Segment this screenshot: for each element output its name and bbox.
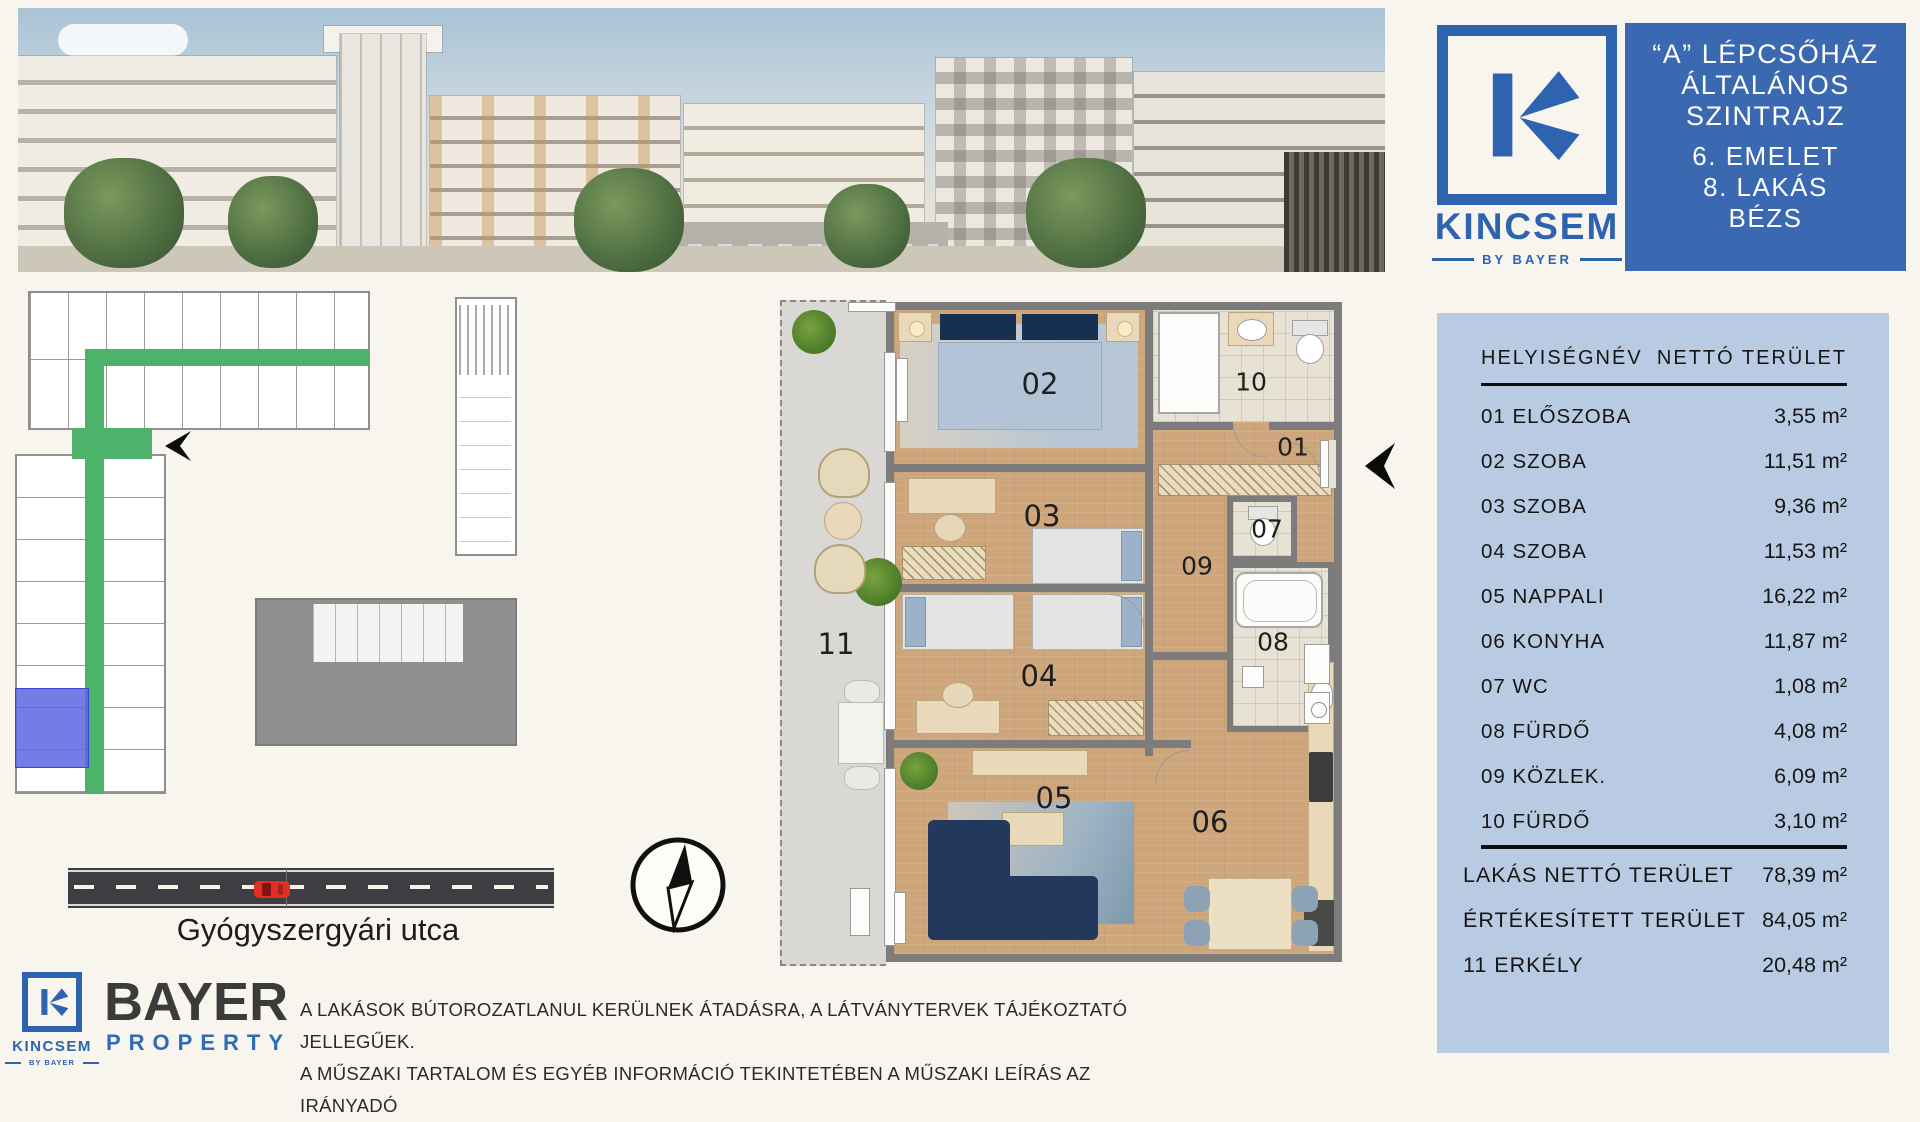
by-bayer-tagline-small: BY BAYER (2, 1058, 102, 1067)
kincsem-logo-small (22, 972, 82, 1032)
pillow (1121, 531, 1142, 581)
lamp (1117, 321, 1133, 337)
tree (64, 158, 184, 268)
shower (1158, 312, 1220, 414)
lounge-chair (814, 544, 866, 594)
header-rule (1481, 383, 1847, 386)
table-header: HELYISÉGNÉV NETTÓ TERÜLET (1437, 347, 1889, 370)
stair-hatch (459, 305, 511, 375)
table-row: 07 WC 1,08 m² (1437, 664, 1889, 709)
window (884, 598, 896, 730)
room-name: 05 NAPPALI (1481, 585, 1605, 609)
desk (908, 478, 996, 514)
tree (824, 184, 910, 268)
wall (1269, 422, 1334, 430)
room-name: 10 FÜRDŐ (1481, 810, 1590, 834)
room-label-01: 01 (1277, 433, 1309, 462)
pillow (940, 314, 1016, 340)
single-bed (1032, 528, 1144, 584)
disclaimer: A LAKÁSOK BÚTOROZATLANUL KERÜLNEK ÁTADÁS… (300, 994, 1130, 1122)
unit-lines (459, 392, 511, 542)
info-panel: “A” LÉPCSŐHÁZÁLTALÁNOSSZINTRAJZ 6. EMELE… (1625, 23, 1906, 271)
k-letter-icon (33, 983, 71, 1021)
wardrobe (1048, 700, 1144, 736)
table-summary: LAKÁS NETTÓ TERÜLET 78,39 m² ÉRTÉKESÍTET… (1437, 853, 1889, 988)
summary-area: 20,48 m² (1762, 953, 1847, 978)
duvet (938, 342, 1102, 430)
doormat (848, 302, 896, 312)
bathtub (1235, 572, 1323, 628)
room-label-11: 11 (818, 627, 855, 661)
summary-name: LAKÁS NETTÓ TERÜLET (1463, 863, 1734, 888)
panel-title-line: SZINTRAJZ (1625, 101, 1906, 132)
panel-title-line: “A” LÉPCSŐHÁZ (1625, 39, 1906, 70)
room-name: 08 FÜRDŐ (1481, 720, 1590, 744)
room-area: 4,08 m² (1774, 719, 1847, 744)
road-edge (68, 904, 554, 906)
room-label-09: 09 (1181, 552, 1213, 581)
basin (1237, 319, 1267, 341)
apartment-floor-plan: 01 02 03 04 05 06 07 08 09 10 11 (780, 300, 1380, 966)
summary-area: 84,05 m² (1762, 908, 1847, 933)
plant (792, 310, 836, 354)
sideboard (972, 750, 1088, 776)
room-label-06: 06 (1192, 805, 1229, 839)
panel-info-line: 8. LAKÁS (1625, 172, 1906, 203)
street-name-label: Gyógyszergyári utca (118, 912, 518, 948)
road-edge (68, 870, 554, 872)
room-name: 07 WC (1481, 675, 1549, 699)
room-name: 06 KONYHA (1481, 630, 1605, 654)
summary-row: 11 ERKÉLY 20,48 m² (1437, 943, 1889, 988)
entrance-arrow-icon (1365, 443, 1395, 489)
plant (900, 752, 938, 790)
coffee-table (1002, 812, 1064, 846)
summary-area: 78,39 m² (1762, 863, 1847, 888)
room-label-04: 04 (1021, 659, 1058, 693)
room-area: 16,22 m² (1762, 584, 1847, 609)
tagline-rule (5, 1062, 21, 1064)
wall (894, 464, 1153, 472)
room-area: 11,53 m² (1764, 539, 1847, 564)
dining-chair (1292, 920, 1318, 946)
washer-door (1311, 702, 1327, 718)
table-row: 05 NAPPALI 16,22 m² (1437, 574, 1889, 619)
panel-info-line: 6. EMELET (1625, 141, 1906, 172)
cloud (58, 24, 188, 56)
unit-arrow-icon (163, 429, 191, 463)
room-area: 6,09 m² (1774, 764, 1847, 789)
balcony-table (838, 702, 884, 764)
kincsem-wordmark-small: KINCSEM (2, 1038, 102, 1055)
table-row: 10 FÜRDŐ 3,10 m² (1437, 799, 1889, 844)
table-row: 03 SZOBA 9,36 m² (1437, 484, 1889, 529)
room-area: 1,08 m² (1774, 674, 1847, 699)
tree (1026, 158, 1146, 268)
disclaimer-line-1: A LAKÁSOK BÚTOROZATLANUL KERÜLNEK ÁTADÁS… (300, 994, 1130, 1058)
dining-chair (1184, 886, 1210, 912)
kincsem-wordmark: KINCSEM (1415, 206, 1639, 248)
ground (18, 246, 1385, 272)
compass-icon (628, 832, 728, 938)
table-row: 02 SZOBA 11,51 m² (1437, 439, 1889, 484)
tagline-text: BY BAYER (29, 1058, 75, 1067)
tagline-rule (83, 1062, 99, 1064)
corridor-highlight-horizontal (88, 349, 370, 366)
wall (1145, 310, 1153, 472)
panel-info: 6. EMELET8. LAKÁSBÉZS (1625, 141, 1906, 234)
pillow (1022, 314, 1098, 340)
wall (1145, 472, 1153, 756)
corridor-highlight-junction (72, 428, 152, 459)
room-name: 02 SZOBA (1481, 450, 1587, 474)
window (884, 352, 896, 452)
bathtub-inner (1243, 580, 1317, 622)
lounge-chair (818, 448, 870, 498)
dining-chair (1184, 920, 1210, 946)
panel-title-line: ÁLTALÁNOS (1625, 70, 1906, 101)
chair (934, 514, 966, 542)
kincsem-logo (1437, 25, 1617, 205)
dining-chair (1292, 886, 1318, 912)
table-row: 09 KÖZLEK. 6,09 m² (1437, 754, 1889, 799)
summary-row: LAKÁS NETTÓ TERÜLET 78,39 m² (1437, 853, 1889, 898)
panel-info-line: BÉZS (1625, 203, 1906, 234)
side-table (824, 502, 862, 540)
car-windshield (262, 883, 271, 896)
doormat (850, 888, 870, 936)
wall (1153, 422, 1233, 430)
balcony-chair (844, 680, 880, 704)
room-name: 03 SZOBA (1481, 495, 1587, 519)
tagline-rule (1432, 258, 1474, 261)
heating-unit (1242, 666, 1264, 688)
table-row: 01 ELŐSZOBA 3,55 m² (1437, 394, 1889, 439)
disclaimer-line-2: A MŰSZAKI TARTALOM ÉS EGYÉB INFORMÁCIÓ T… (300, 1058, 1130, 1122)
summary-name: 11 ERKÉLY (1463, 953, 1584, 978)
car (254, 881, 290, 898)
lane-divider-dashes (74, 885, 548, 889)
washing-machine (1304, 692, 1330, 724)
table-row: 06 KONYHA 11,87 m² (1437, 619, 1889, 664)
wardrobe (902, 546, 986, 580)
tagline-text: BY BAYER (1482, 252, 1572, 267)
site-plan (15, 288, 555, 796)
summary-rule (1481, 845, 1847, 849)
table-row: 04 SZOBA 11,53 m² (1437, 529, 1889, 574)
toilet-bowl (1296, 334, 1324, 364)
balcony-chair (844, 766, 880, 790)
table-row: 08 FÜRDŐ 4,08 m² (1437, 709, 1889, 754)
building-tower (340, 34, 426, 272)
building-panorama-photo (18, 8, 1385, 272)
summary-row: ÉRTÉKESÍTETT TERÜLET 84,05 m² (1437, 898, 1889, 943)
cooktop (1309, 752, 1333, 802)
entry-door (1320, 440, 1329, 488)
tagline-rule (1580, 258, 1622, 261)
dining-table (1208, 878, 1292, 950)
column-header-name: HELYISÉGNÉV (1481, 347, 1643, 370)
lamp (909, 321, 925, 337)
tv-stand (894, 892, 906, 944)
room-name: 01 ELŐSZOBA (1481, 405, 1631, 429)
summary-name: ÉRTÉKESÍTETT TERÜLET (1463, 908, 1746, 933)
room-name: 09 KÖZLEK. (1481, 765, 1606, 789)
car-rear-window (278, 884, 283, 895)
single-bed (902, 594, 1014, 650)
pillow (905, 597, 926, 647)
dark-slat-screen (1284, 152, 1385, 272)
unit-highlight (15, 688, 89, 768)
room-area: 11,87 m² (1764, 629, 1847, 654)
room-area: 9,36 m² (1774, 494, 1847, 519)
podium-units (313, 604, 463, 662)
bayer-property-logo: BAYER (104, 976, 288, 1028)
area-table: HELYISÉGNÉV NETTÓ TERÜLET 01 ELŐSZOBA 3,… (1437, 313, 1889, 1053)
washbasin (1228, 312, 1274, 346)
room-label-03: 03 (1024, 499, 1061, 533)
wall (1153, 652, 1227, 660)
column-header-area: NETTÓ TERÜLET (1657, 347, 1847, 370)
room-name: 04 SZOBA (1481, 540, 1587, 564)
room-area: 11,51 m² (1764, 449, 1847, 474)
tree (228, 176, 318, 268)
washbasin (1304, 644, 1330, 684)
room-area: 3,10 m² (1774, 809, 1847, 834)
room-label-08: 08 (1257, 628, 1289, 657)
double-bed (936, 312, 1102, 430)
by-bayer-tagline: BY BAYER (1415, 252, 1639, 267)
room-area: 3,55 m² (1774, 404, 1847, 429)
room-label-07: 07 (1251, 515, 1283, 544)
sofa (928, 876, 1098, 940)
chair (942, 682, 974, 708)
wall (894, 584, 1153, 592)
panel-title: “A” LÉPCSŐHÁZÁLTALÁNOSSZINTRAJZ (1625, 39, 1906, 132)
room-label-02: 02 (1022, 367, 1059, 401)
nightstand (898, 312, 932, 342)
room-label-05: 05 (1036, 781, 1073, 815)
room-label-10: 10 (1235, 368, 1267, 397)
table-rows: 01 ELŐSZOBA 3,55 m² 02 SZOBA 11,51 m² 03… (1437, 394, 1889, 844)
nightstand (1106, 312, 1140, 342)
bayer-property-sub: PROPERTY (106, 1030, 291, 1056)
tree (574, 168, 684, 272)
street-graphic (68, 868, 554, 908)
k-letter-icon (1466, 54, 1588, 176)
shelf (896, 358, 908, 422)
